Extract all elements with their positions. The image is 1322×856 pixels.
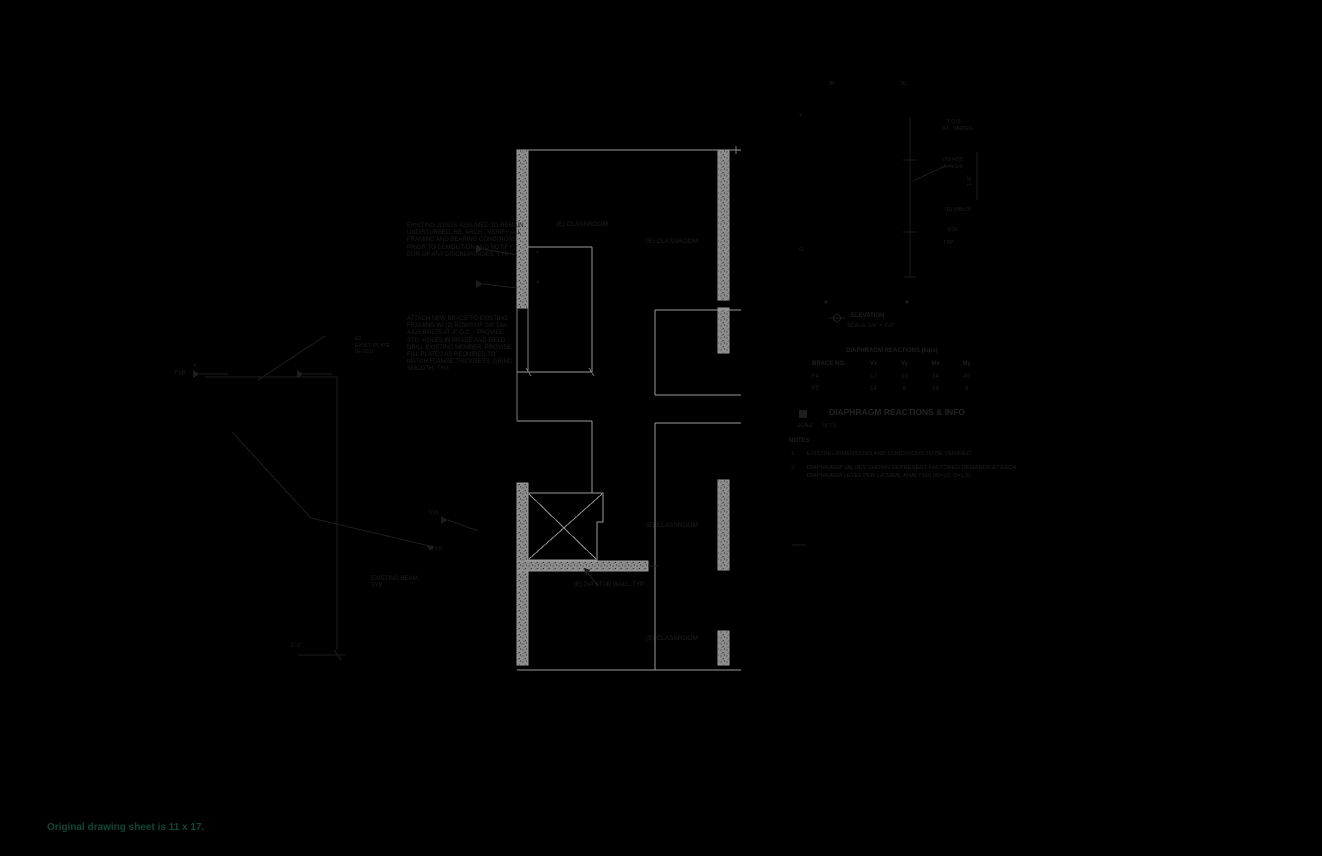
title-block-scale-label: SCALE [797,424,813,429]
dimension-3ft: 3'-0" [290,643,302,649]
note1-line: FRAMING AND BEARING CONDITIONS [407,237,523,244]
table-header-cell: BRACE NO. [812,361,858,367]
note2-line: ATTACH NEW BRACE TO EXISTING [407,316,512,323]
detail-scale: SCALE: 1/4" = 1'-0" [847,324,895,330]
grid-label-b: 3C [900,82,907,88]
elevation-ann-tos: T.O.S. [947,120,962,126]
elevation-dim-vertical: 1'-6" [968,175,974,186]
table-header-cell: Vx [858,361,889,367]
elevation-ann-hss1: (N) HSS [943,158,963,164]
title-block-scale: N.T.S. [823,424,838,430]
note-block-1: EXISTING JOISTS ASSUMED TO REMAIN UNDIST… [407,223,523,259]
note-1-text: EXISTING DIMENSIONS AND CONDITIONS TO BE… [807,452,973,458]
elevation-ann-el: EL. VARIES [943,127,973,133]
shaft-x-brace [529,494,602,559]
weld-size-left: 4 [193,364,196,370]
title-block-title: DIAPHRAGM REACTIONS & INFO [829,408,965,417]
note2-line: SMOOTH, TYP. [407,366,512,373]
table-cell: F5 [812,386,858,392]
note-1-number: 1. [791,452,796,458]
table-header-cell: My [951,361,982,367]
table-header-cell: Mx [920,361,951,367]
note-2-number: 2. [791,466,796,472]
note1-line: UNDISTURBED, RE: ARCH - VERIFY ALL [407,230,523,237]
table-cell: F4 [812,374,858,380]
drawing-sheet: (E) CLASSROOM (E) CLASSROOM (E) CLASSROO… [0,0,1322,856]
plate-tag-line: (E-101) [355,349,390,356]
room-label-classroom-tl: (E) CLASSROOM [556,222,608,229]
weld-size-shaft: 3/16 [428,511,439,517]
table-cell: 14 [920,386,951,392]
note1-line: EXISTING JOISTS ASSUMED TO REMAIN [407,223,523,230]
table-cell: 14 [858,386,889,392]
table-cell: 17 [858,374,889,380]
elevation-ann-hss2: 4x4x1/4 [943,165,962,171]
table-header-cell: Vy [889,361,920,367]
detail-title: ELEVATION [851,313,884,319]
room-label-classroom-mr: (E) CLASSROOM [646,523,698,530]
note2-line: FRAMING W/ (2) ROWS OF 3/4" DIA. [407,323,512,330]
elevation-ann-beam: (E) W8x15 [945,208,971,214]
elevation-ann-weld: 3/16 [947,228,958,234]
grid-label-a: 3B [828,82,835,88]
room-label-classroom-br: (E) CLASSROOM [646,636,698,643]
table-row: F4 17 13 14 40 [812,374,982,380]
existing-beam-label-line2: TYP [371,583,383,589]
note-2-text-line2: DIAPHRAGM LEVEL PER LATERAL ANALYSIS (W=… [807,474,972,480]
table-cell: 14 [920,374,951,380]
note2-line: A325 BOLTS AT 3" O.C. - PROVIDE [407,330,512,337]
existing-beam-label-line1: EXISTING BEAM, [371,576,419,582]
plate-tag: E2 EXIST. PLATE (E-101) [355,336,390,356]
typ-label-left: TYP [174,371,186,377]
note-block-2: ATTACH NEW BRACE TO EXISTING FRAMING W/ … [407,316,512,374]
weld-size-b: 4 [536,281,539,287]
weld-size-a: 4 [536,251,539,257]
elevation-ann-typ: TYP [943,241,954,247]
table-cell: 13 [889,374,920,380]
level-label-top: Y [799,114,803,120]
table-cell: 8 [951,386,982,392]
note2-line: FILL PLATES AS REQUIRED TO [407,352,512,359]
notes-heading: NOTES [789,438,810,444]
note2-line: STD. HOLES IN BRACE AND FIELD [407,338,512,345]
level-label-bottom: G [799,248,803,254]
table-title: DIAPHRAGM REACTIONS (kips) [846,348,938,354]
plan-thin-lines [517,146,736,421]
dark-symbols [193,245,909,576]
table-header-row: BRACE NO. Vx Vy Mx My [812,361,982,367]
note2-line: DRILL EXISTING MEMBER. PROVIDE [407,345,512,352]
table-row: F5 14 8 14 8 [812,386,982,392]
stud-wall-label: (E) 2x4 STUD WALL, TYP. [574,582,645,588]
typ-label-shaft: TYP [431,547,443,553]
note-2-text-line1: DIAPHRAGM VALUES SHOWN REPRESENT FACTORE… [807,466,1016,472]
room-label-classroom-tr: (E) CLASSROOM [646,239,698,246]
sheet-size-caption: Original drawing sheet is 11 x 17. [47,822,204,833]
note1-line: PRIOR TO DEMOLITION AND NOTIFY [407,245,523,252]
table-cell: 40 [951,374,982,380]
note1-line: EOR OF ANY DISCREPANCIES, TYP. [407,252,523,259]
table-cell: 8 [889,386,920,392]
floor-plan-drawing [0,0,1322,856]
note2-line: MATCH FLANGE THICKNESS, GRIND [407,359,512,366]
plan-outlines [517,150,741,670]
